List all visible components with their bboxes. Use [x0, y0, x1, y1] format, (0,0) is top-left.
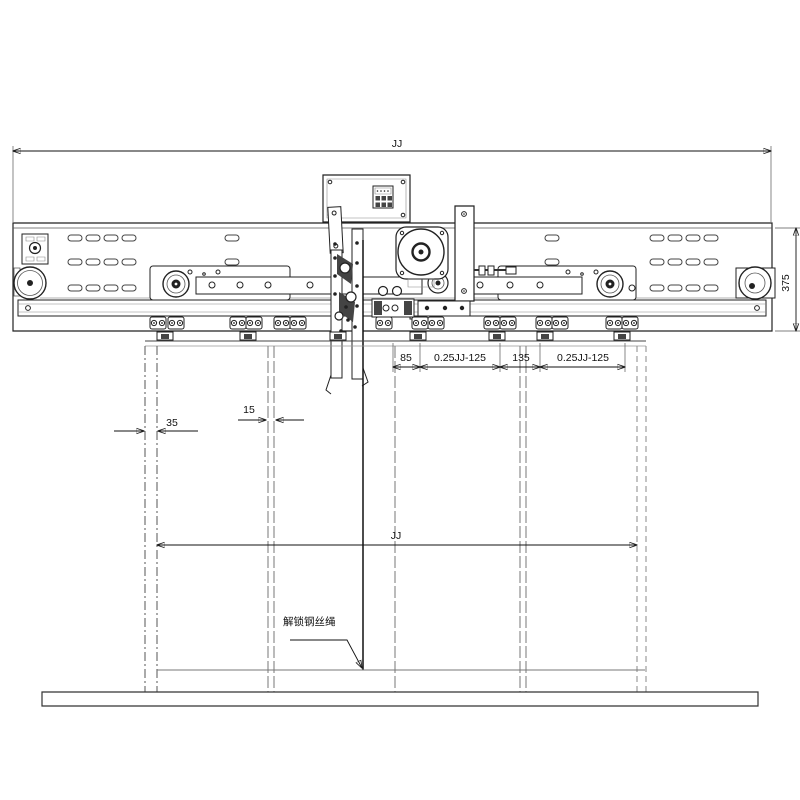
dim-135-label: 135 — [512, 352, 530, 364]
jamb-gap-dimension: 35 — [114, 417, 198, 431]
panel-chain-dimension: 85 0.25JJ-125 135 0.25JJ-125 — [393, 343, 625, 372]
door-operator-drawing: JJ 375 85 0.25JJ-125 135 0.25JJ-125 35 1… — [0, 0, 800, 800]
left-end-bracket — [22, 234, 48, 264]
door-panels — [145, 341, 646, 692]
dim-quarter-jj-right-label: 0.25JJ-125 — [557, 352, 609, 364]
header-height-label: 375 — [780, 274, 792, 292]
top-width-label: JJ — [392, 138, 403, 150]
door-lock-mechanism — [326, 207, 368, 670]
unlock-rope-callout: 解锁钢丝绳 — [283, 615, 362, 668]
controller-keypad — [373, 186, 393, 208]
panel-thickness-dimension: 15 — [238, 404, 304, 420]
right-belt-pulley — [736, 267, 775, 299]
unlock-rope-label: 解锁钢丝绳 — [283, 615, 336, 628]
dim-35-label: 35 — [166, 417, 178, 429]
dim-85-label: 85 — [400, 352, 412, 364]
opening-width-dimension: JJ — [157, 530, 637, 545]
dim-15-label: 15 — [243, 404, 255, 416]
opening-width-label: JJ — [391, 530, 402, 542]
door-top-clamps — [157, 332, 630, 340]
header-height-dimension: 375 — [775, 228, 800, 331]
sill — [42, 692, 758, 706]
drive-motor — [396, 227, 448, 287]
dim-quarter-jj-left-label: 0.25JJ-125 — [434, 352, 486, 364]
left-belt-pulley — [14, 267, 46, 299]
